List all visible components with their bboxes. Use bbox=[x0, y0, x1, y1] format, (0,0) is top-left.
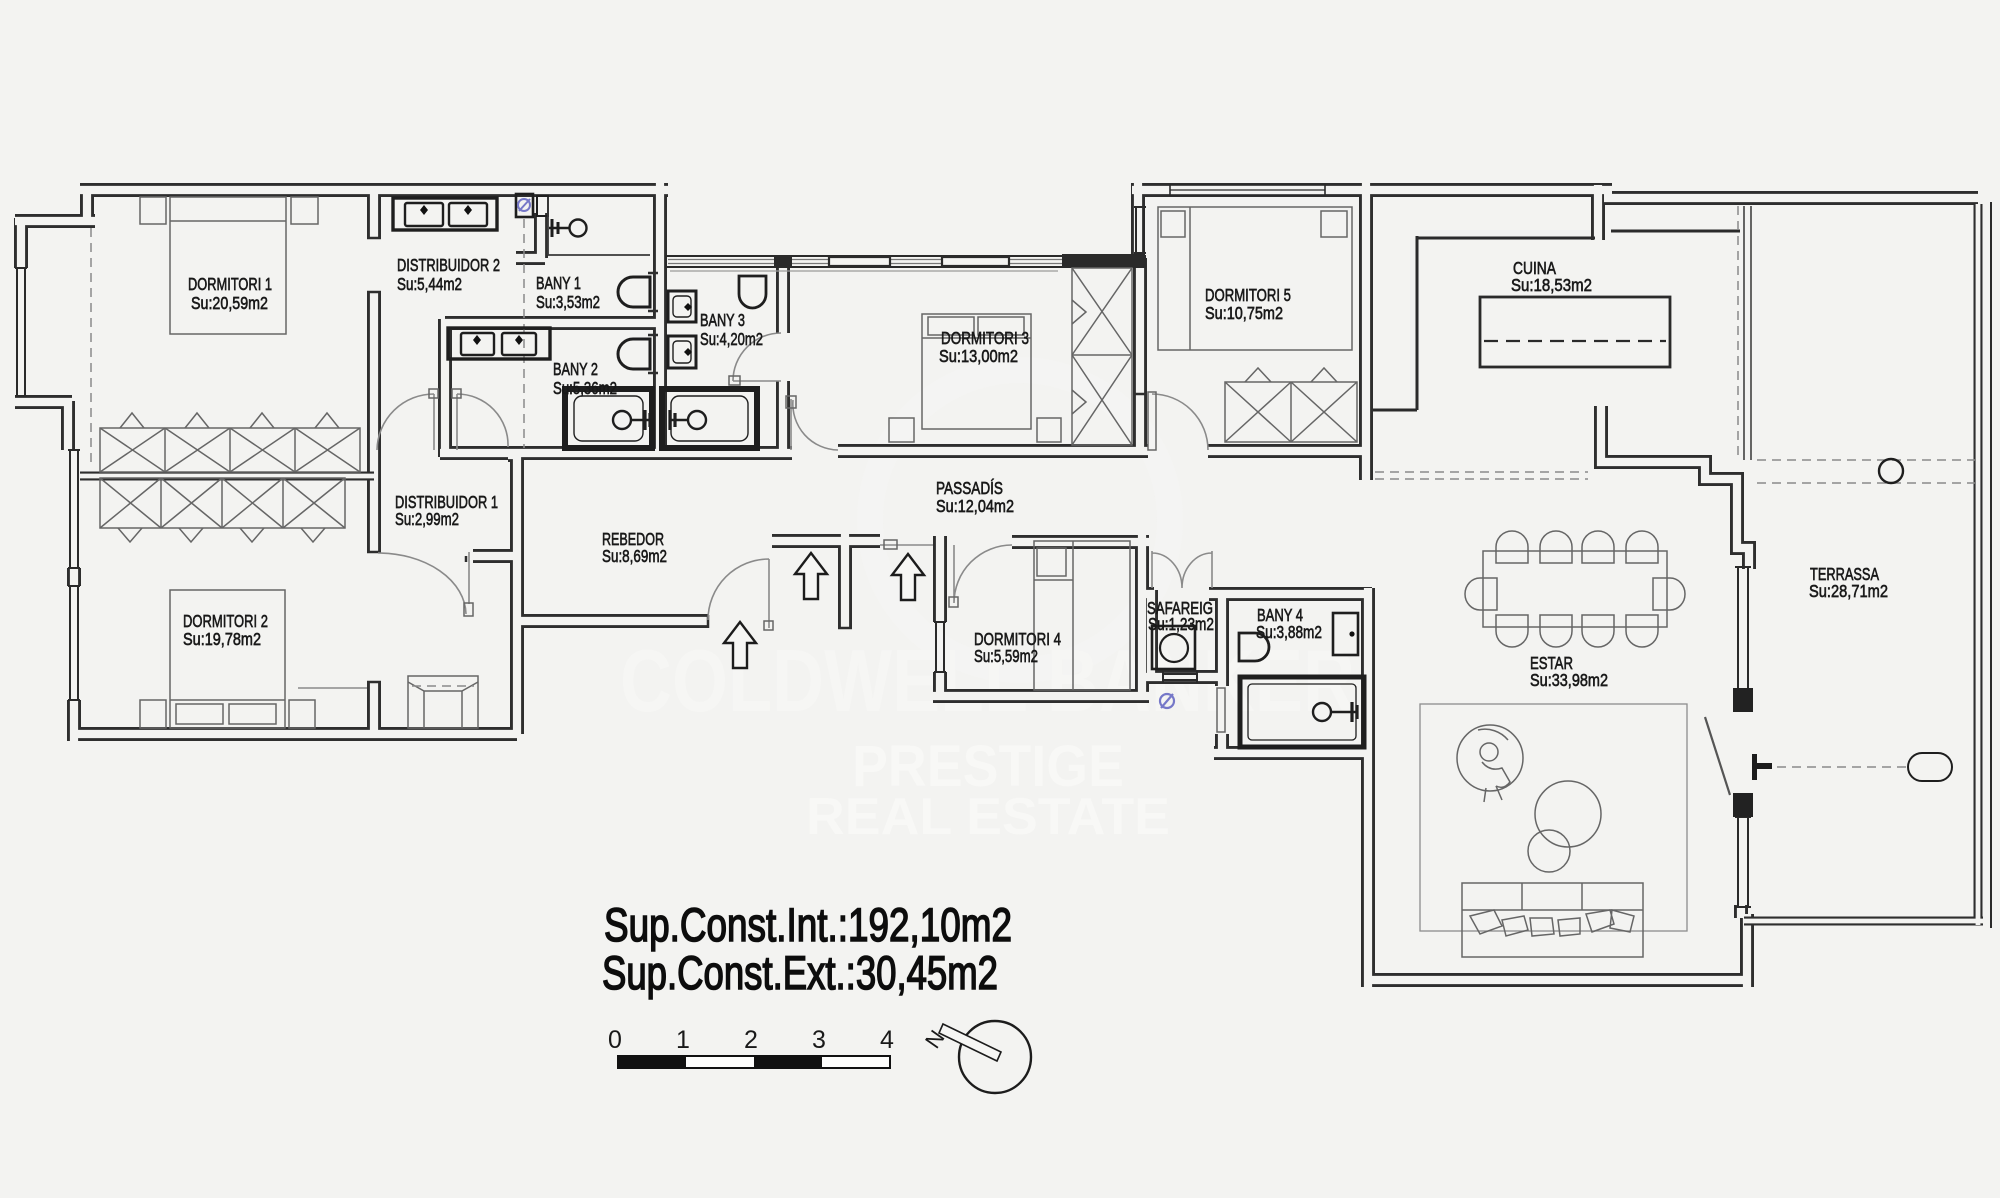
svg-text:Su:20,59m2: Su:20,59m2 bbox=[191, 293, 268, 313]
svg-text:Su:2,99m2: Su:2,99m2 bbox=[395, 509, 459, 529]
svg-text:Su:3,53m2: Su:3,53m2 bbox=[536, 292, 600, 312]
svg-text:BANY 2: BANY 2 bbox=[553, 359, 598, 379]
svg-text:Su:4,20m2: Su:4,20m2 bbox=[700, 329, 763, 349]
svg-text:DORMITORI 1: DORMITORI 1 bbox=[188, 274, 272, 294]
svg-text:Su:13,00m2: Su:13,00m2 bbox=[939, 346, 1018, 366]
svg-text:4: 4 bbox=[880, 1026, 894, 1054]
svg-text:DORMITORI 2: DORMITORI 2 bbox=[183, 611, 268, 631]
svg-text:Su:10,75m2: Su:10,75m2 bbox=[1205, 303, 1283, 323]
svg-text:Su:33,98m2: Su:33,98m2 bbox=[1530, 670, 1608, 690]
svg-text:Su:12,04m2: Su:12,04m2 bbox=[936, 496, 1014, 516]
svg-text:Sup.Const.Int.:192,10m2: Sup.Const.Int.:192,10m2 bbox=[604, 898, 1012, 951]
svg-text:Sup.Const.Ext.:30,45m2: Sup.Const.Ext.:30,45m2 bbox=[602, 946, 998, 999]
svg-text:Su:1,23m2: Su:1,23m2 bbox=[1148, 614, 1214, 634]
svg-text:PASSADÍS: PASSADÍS bbox=[936, 478, 1003, 498]
svg-text:Su:8,69m2: Su:8,69m2 bbox=[602, 546, 667, 566]
svg-text:DISTRIBUIDOR 2: DISTRIBUIDOR 2 bbox=[397, 255, 500, 275]
svg-text:REAL ESTATE: REAL ESTATE bbox=[806, 788, 1170, 846]
svg-text:Su:28,71m2: Su:28,71m2 bbox=[1809, 581, 1888, 601]
svg-text:BANY 1: BANY 1 bbox=[536, 273, 581, 293]
svg-text:0: 0 bbox=[608, 1026, 622, 1054]
svg-text:Su:18,53m2: Su:18,53m2 bbox=[1511, 275, 1592, 295]
svg-text:Su:3,88m2: Su:3,88m2 bbox=[1256, 622, 1322, 642]
svg-text:1: 1 bbox=[676, 1026, 690, 1054]
svg-text:DORMITORI 3: DORMITORI 3 bbox=[941, 328, 1029, 348]
svg-text:DORMITORI 5: DORMITORI 5 bbox=[1205, 285, 1291, 305]
svg-text:3: 3 bbox=[812, 1026, 826, 1054]
svg-text:2: 2 bbox=[744, 1026, 758, 1054]
svg-text:Su:5,36m2: Su:5,36m2 bbox=[553, 378, 617, 398]
svg-text:Su:19,78m2: Su:19,78m2 bbox=[183, 629, 261, 649]
svg-text:BANY 3: BANY 3 bbox=[700, 310, 745, 330]
svg-text:Su:5,59m2: Su:5,59m2 bbox=[974, 646, 1038, 666]
svg-text:Su:5,44m2: Su:5,44m2 bbox=[397, 274, 462, 294]
